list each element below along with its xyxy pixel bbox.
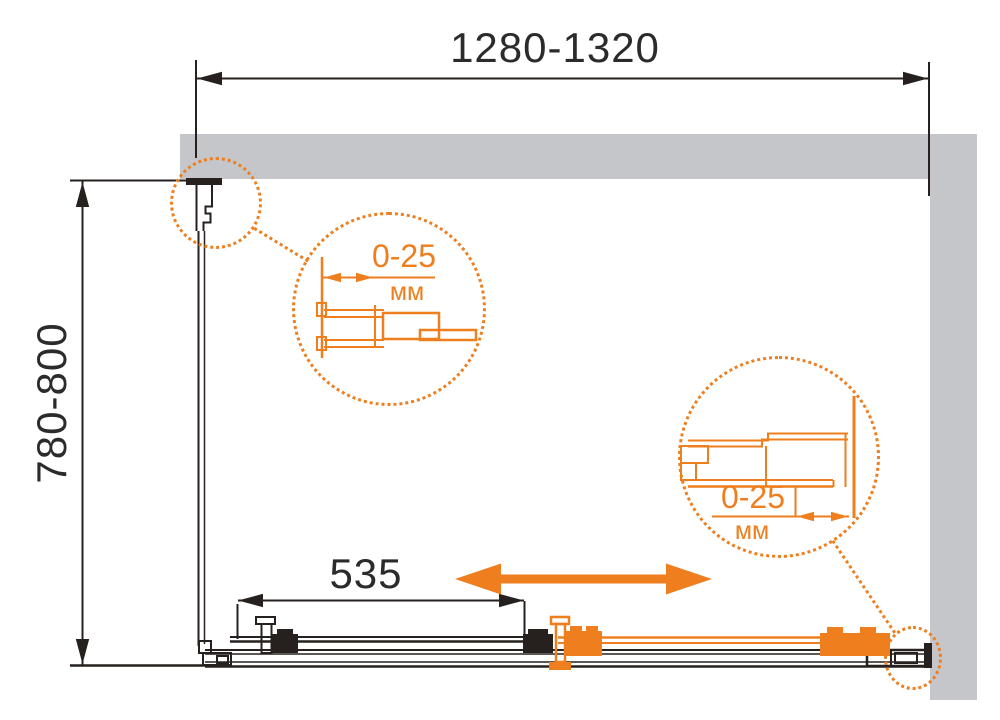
door-roller-left-body bbox=[566, 631, 602, 656]
depth-dimension bbox=[70, 181, 205, 666]
roller-left-body bbox=[272, 634, 298, 653]
shower-enclosure-dimension-diagram: 1280-1320 780-800 535 0-25 мм 0-25 мм bbox=[0, 0, 1000, 720]
detail-2-range-label: 0-25 bbox=[703, 481, 803, 513]
door-roller-right-cap-1 bbox=[827, 627, 843, 634]
depth-arrow-top-icon bbox=[76, 182, 89, 207]
detail-2-unit-label: мм bbox=[702, 519, 802, 544]
fixed-glass-panel bbox=[230, 617, 553, 653]
door-arrow-left-icon bbox=[238, 594, 263, 607]
fixed-panel-knob-stem bbox=[262, 624, 272, 653]
roller-mid-body bbox=[523, 634, 553, 653]
drawing-linework bbox=[0, 0, 1000, 720]
width-arrow-right-icon bbox=[903, 72, 928, 85]
detail-1-range-label: 0-25 bbox=[354, 240, 454, 272]
door-roller-right-body bbox=[820, 633, 890, 656]
width-dimension bbox=[196, 60, 929, 196]
detail-source-circle-left bbox=[170, 157, 262, 249]
overall-width-label: 1280-1320 bbox=[405, 27, 705, 69]
door-guide-foot bbox=[549, 662, 571, 670]
door-arrow-right-icon bbox=[499, 594, 524, 607]
fixed-panel-knob-cap bbox=[256, 617, 275, 624]
detail-source-circle-right bbox=[884, 626, 942, 690]
width-arrow-left-icon bbox=[197, 72, 222, 85]
depth-arrow-bottom-icon bbox=[76, 639, 89, 664]
slide-direction-arrow-icon bbox=[455, 564, 712, 595]
door-roller-right-cap-2 bbox=[860, 627, 876, 634]
door-panel-width-label: 535 bbox=[316, 553, 416, 595]
overall-depth-label: 780-800 bbox=[31, 253, 75, 553]
detail-1-unit-label: мм bbox=[357, 280, 457, 305]
